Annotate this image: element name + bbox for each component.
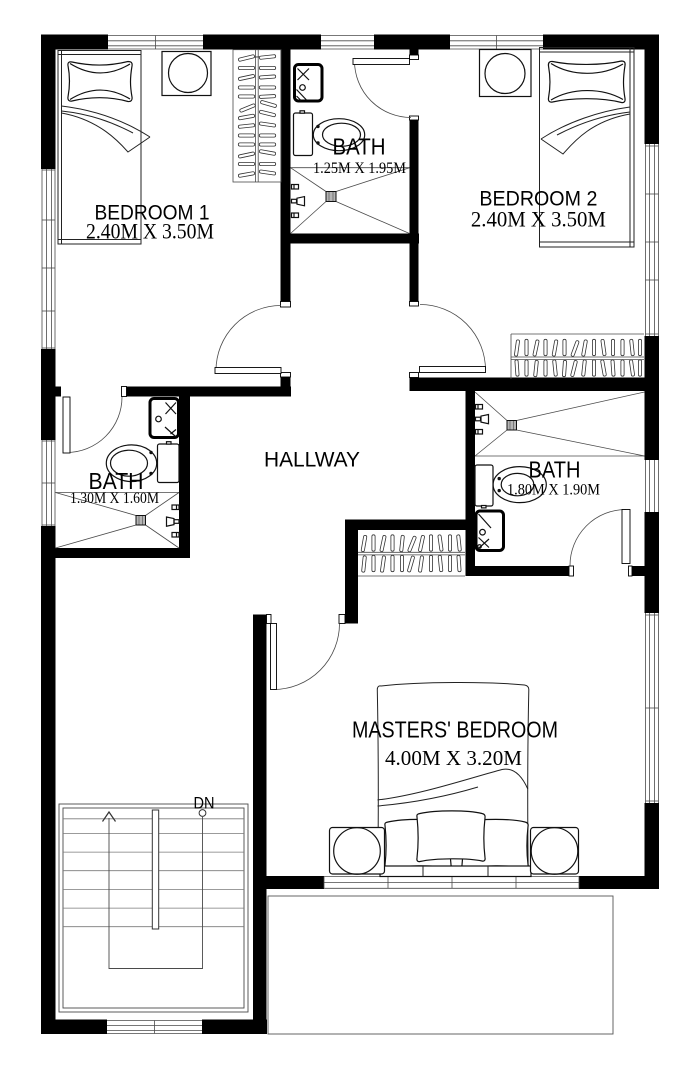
svg-text:BATH: BATH <box>529 456 581 482</box>
svg-text:2.40M X 3.50M: 2.40M X 3.50M <box>471 207 606 232</box>
svg-text:4.00M X 3.20M: 4.00M X 3.20M <box>385 746 522 770</box>
svg-text:1.30M X 1.60M: 1.30M X 1.60M <box>70 490 159 507</box>
svg-text:HALLWAY: HALLWAY <box>264 449 360 472</box>
svg-text:1.80M X 1.90M: 1.80M X 1.90M <box>507 481 600 498</box>
svg-text:DN: DN <box>194 794 215 813</box>
svg-text:1.25M X 1.95M: 1.25M X 1.95M <box>313 160 406 177</box>
svg-text:MASTERS' BEDROOM: MASTERS' BEDROOM <box>352 717 558 743</box>
svg-text:BATH: BATH <box>333 134 386 160</box>
svg-text:2.40M X 3.50M: 2.40M X 3.50M <box>86 219 214 244</box>
